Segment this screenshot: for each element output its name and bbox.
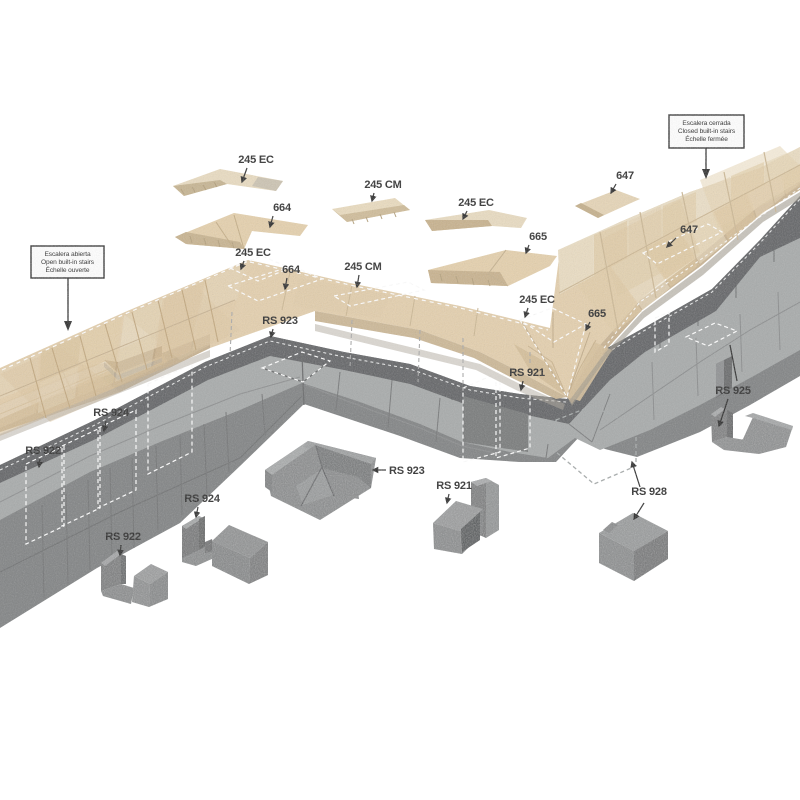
svg-text:RS 923: RS 923 <box>389 465 425 477</box>
svg-text:RS 928: RS 928 <box>631 486 667 498</box>
svg-text:RS 924: RS 924 <box>184 493 221 505</box>
svg-text:RS 922: RS 922 <box>105 531 141 543</box>
svg-text:RS 923: RS 923 <box>262 315 298 327</box>
svg-text:245 EC: 245 EC <box>519 294 555 306</box>
svg-text:665: 665 <box>588 308 606 320</box>
svg-text:245 EC: 245 EC <box>238 154 274 166</box>
svg-text:664: 664 <box>282 264 301 276</box>
svg-text:RS 921: RS 921 <box>509 367 545 379</box>
svg-text:245 CM: 245 CM <box>344 261 381 273</box>
svg-text:RS 924: RS 924 <box>93 407 130 419</box>
svg-text:665: 665 <box>529 231 547 243</box>
svg-text:Échelle ouverte: Échelle ouverte <box>46 265 90 274</box>
svg-text:245 EC: 245 EC <box>458 197 494 209</box>
svg-text:Escalera cerrada: Escalera cerrada <box>682 120 731 127</box>
svg-text:Échelle fermée: Échelle fermée <box>685 134 728 143</box>
svg-text:RS 922: RS 922 <box>25 445 61 457</box>
svg-text:Escalera abierta: Escalera abierta <box>44 251 90 258</box>
svg-text:RS 921: RS 921 <box>436 480 472 492</box>
svg-text:245 CM: 245 CM <box>364 179 401 191</box>
svg-text:245 EC: 245 EC <box>235 247 271 259</box>
svg-text:664: 664 <box>273 202 292 214</box>
svg-text:RS 925: RS 925 <box>715 385 751 397</box>
svg-text:647: 647 <box>680 224 698 236</box>
svg-text:Closed built-in stairs: Closed built-in stairs <box>678 128 736 135</box>
svg-text:647: 647 <box>616 170 634 182</box>
svg-text:Open built-in stairs: Open built-in stairs <box>41 259 95 266</box>
